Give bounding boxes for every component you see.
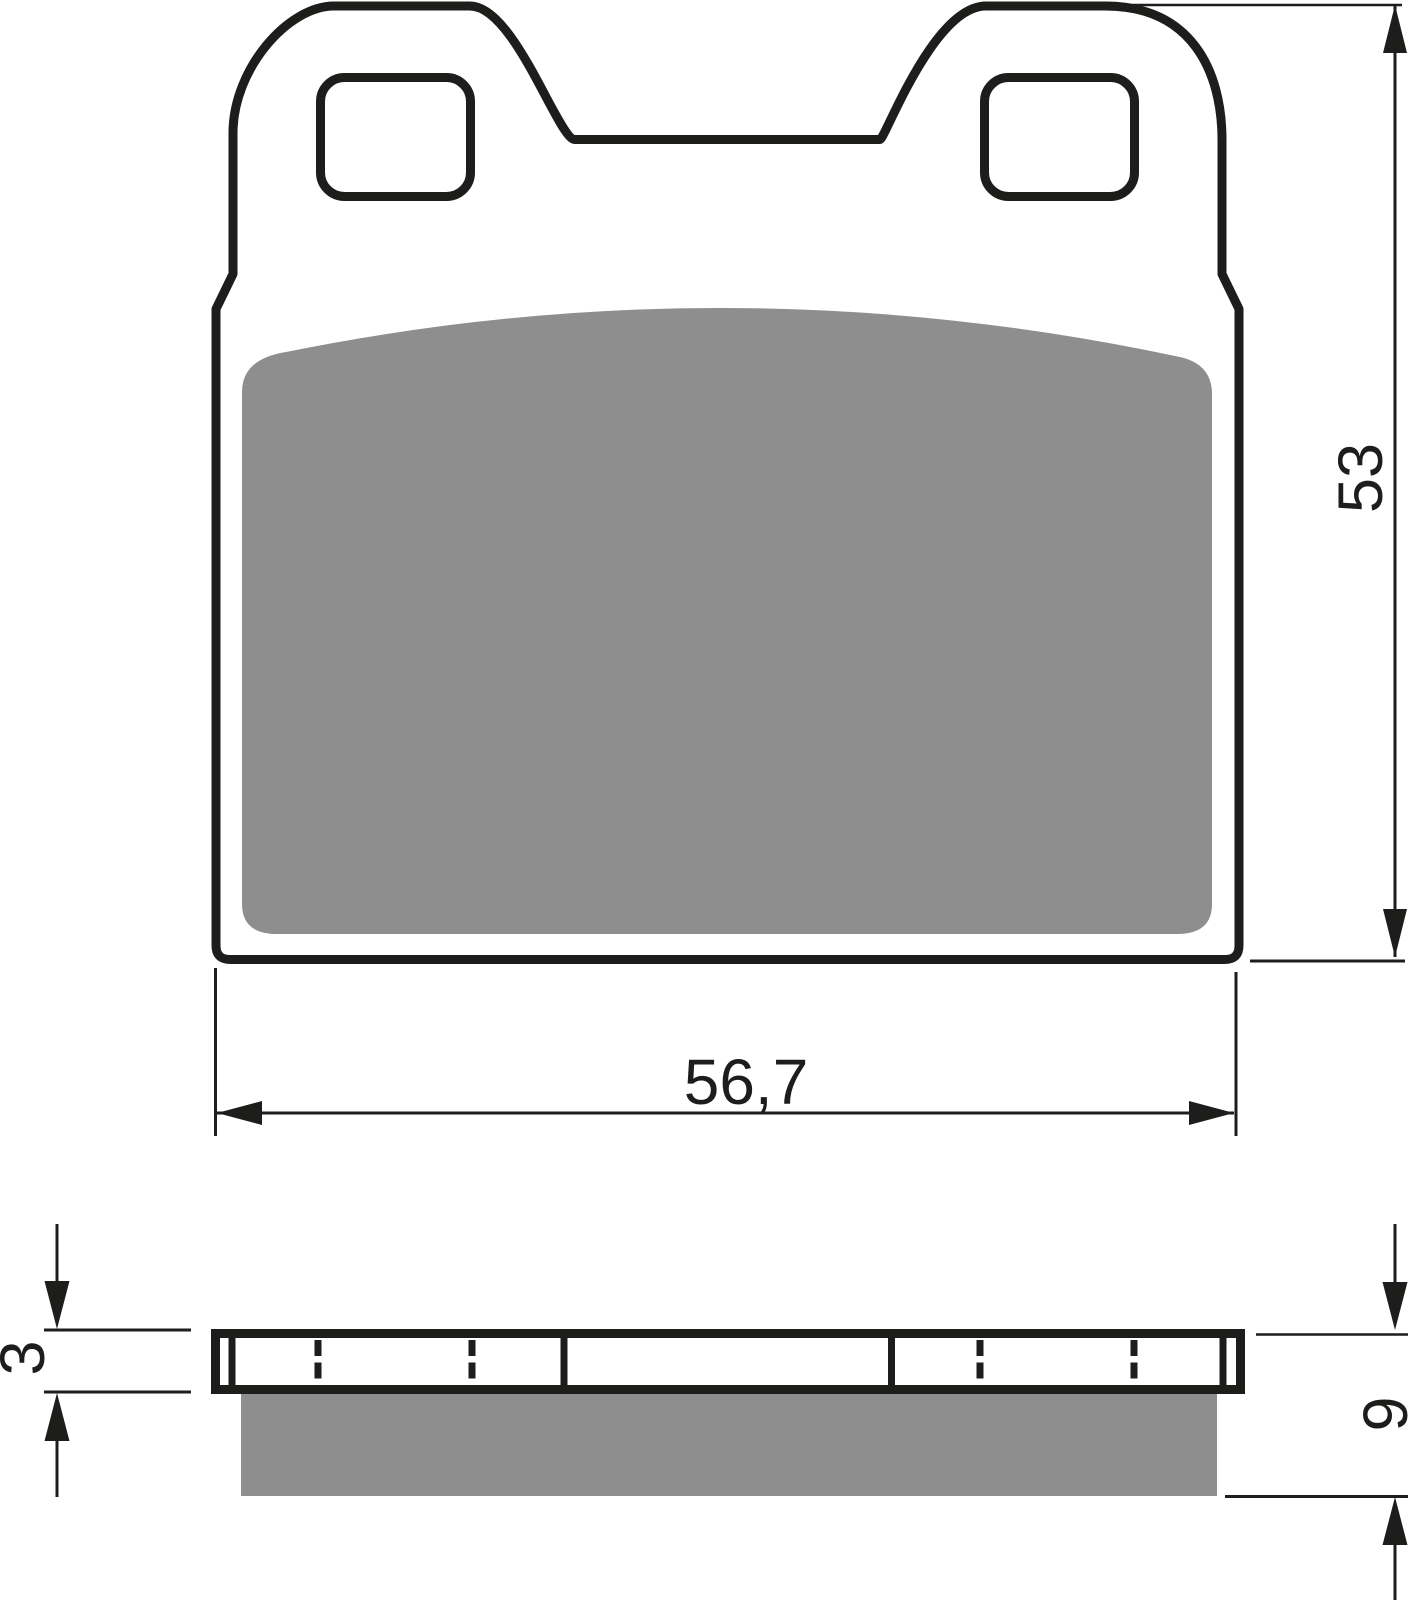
svg-text:9: 9 — [1351, 1396, 1408, 1431]
svg-text:3: 3 — [0, 1340, 58, 1375]
svg-text:53: 53 — [1326, 443, 1396, 513]
svg-text:56,7: 56,7 — [684, 1046, 809, 1118]
